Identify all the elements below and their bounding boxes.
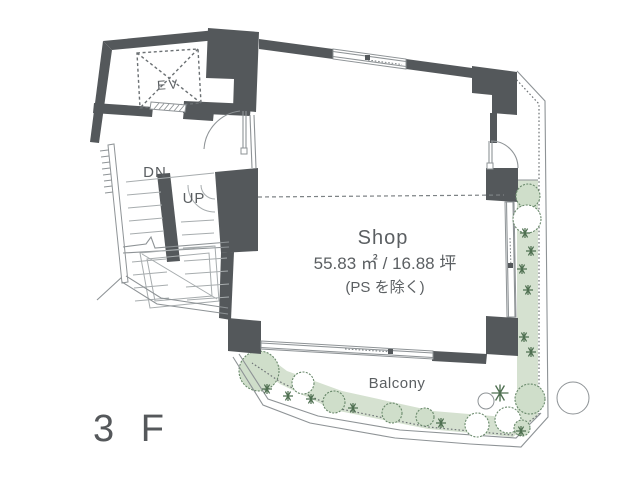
shop-name-label: Shop <box>358 227 409 249</box>
left-wall <box>90 41 112 143</box>
ev-top-wall <box>103 30 217 50</box>
door-jamb-wall <box>250 115 256 168</box>
balcony-label: Balcony <box>369 375 426 392</box>
window-mullion <box>388 349 393 354</box>
tree-icon <box>382 403 402 423</box>
right-wall-upper <box>490 113 497 143</box>
tree-icon <box>465 413 489 437</box>
floor-plan-drawing: EV DN UP Shop 55.83 ㎡ / 16.88 坪 (PS を除く)… <box>0 0 640 480</box>
stairs-up-label: UP <box>183 190 206 207</box>
tree-icon <box>292 372 314 394</box>
right-wall-mid-block <box>486 168 518 202</box>
shop-area-label: 55.83 ㎡ / 16.88 坪 <box>314 254 457 273</box>
door-hinge <box>241 148 247 154</box>
shop-top-wall-right <box>406 59 472 78</box>
shop-left-wall-lower <box>219 252 234 320</box>
window-mullion <box>508 263 513 268</box>
ps-exclusion-dashed-line <box>258 195 504 197</box>
tree-icon <box>515 384 545 414</box>
shop-area-note: (PS を除く) <box>345 279 424 296</box>
bottom-window <box>261 341 433 359</box>
top-right-corner-block <box>472 66 517 115</box>
floor-label: 3 F <box>93 408 172 450</box>
bottom-wall-right <box>432 351 487 364</box>
shop-top-wall-left <box>259 39 333 59</box>
tree-icon <box>516 184 540 208</box>
ground-line <box>97 277 122 300</box>
tree-icon <box>323 391 345 413</box>
tree-icon <box>416 408 434 426</box>
tree-icon <box>557 382 589 414</box>
windows <box>261 49 516 359</box>
bottom-right-corner-block <box>486 316 518 356</box>
elevator-door-hatch <box>150 102 186 112</box>
ev-right-column <box>206 28 259 112</box>
doors <box>204 111 518 169</box>
stair-treads <box>126 173 229 301</box>
stair-outer-wall <box>108 144 128 283</box>
ps-shaft-block <box>215 168 258 253</box>
stairs-down-label: DN <box>143 164 167 181</box>
top-window <box>333 49 406 69</box>
walls <box>90 28 518 364</box>
floor-plan-canvas: EV DN UP Shop 55.83 ㎡ / 16.88 坪 (PS を除く)… <box>0 0 640 480</box>
door-hinge <box>487 163 493 169</box>
planter-strip <box>249 180 538 437</box>
planting <box>262 184 589 437</box>
balcony-door <box>487 141 518 169</box>
bottom-left-corner-block <box>228 318 261 354</box>
window-mullion <box>365 55 370 60</box>
elevator-label: EV <box>157 76 181 93</box>
stair-stringer-wall <box>157 173 180 262</box>
tree-icon <box>478 393 494 409</box>
